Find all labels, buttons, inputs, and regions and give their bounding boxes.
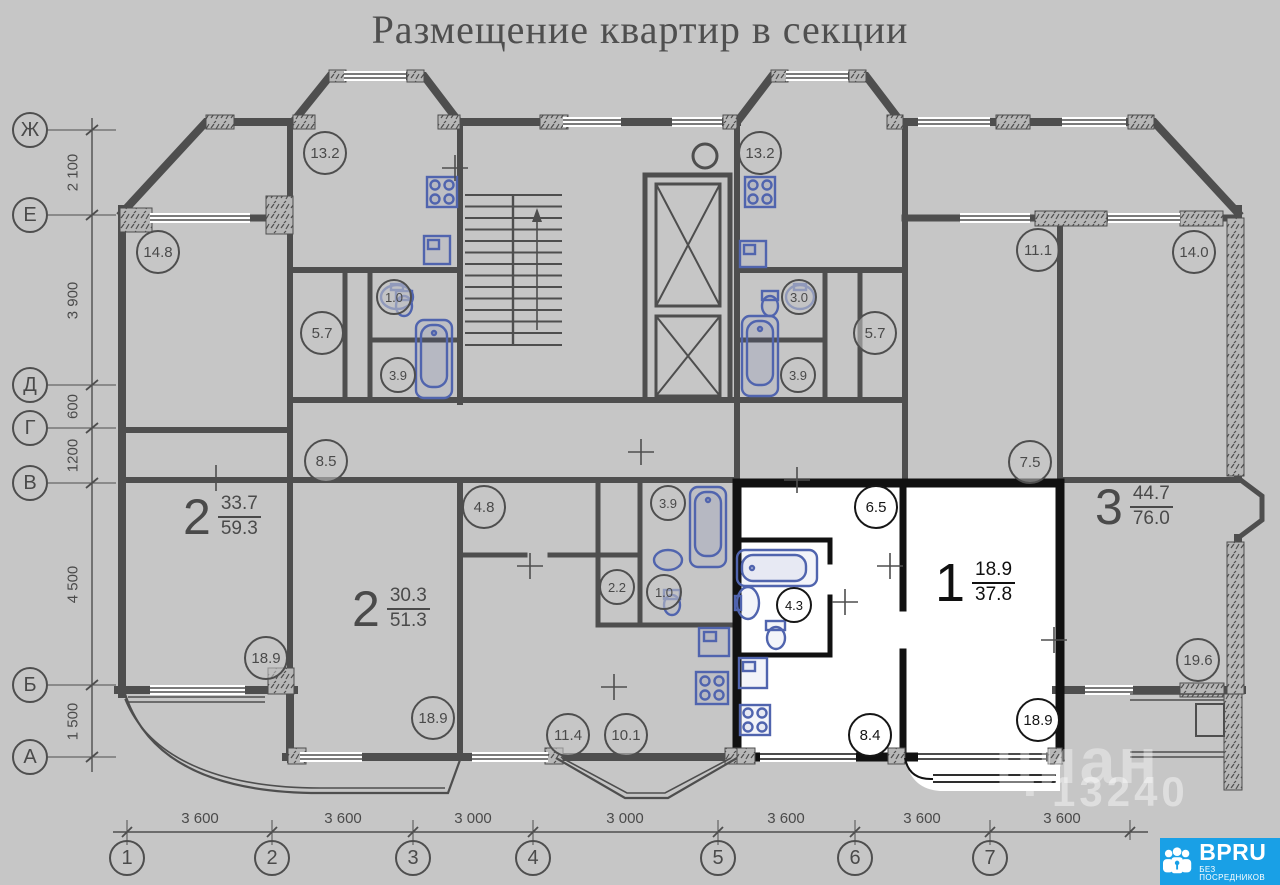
page-title: Размещение квартир в секции — [0, 6, 1280, 53]
axis-row-marker: Ж — [12, 112, 48, 148]
people-lock-icon — [1160, 846, 1194, 878]
room-area-label: 8.4 — [848, 713, 892, 757]
room-area-label: 13.2 — [738, 131, 782, 175]
room-area-label: 13.2 — [303, 131, 347, 175]
room-area-label: 18.9 — [244, 636, 288, 680]
stairs — [465, 195, 562, 345]
axis-row-marker: Г — [12, 410, 48, 446]
bpru-badge: BPRU БЕЗ ПОСРЕДНИКОВ — [1160, 838, 1280, 885]
walls-gray — [118, 76, 1262, 760]
axis-row-marker: Е — [12, 197, 48, 233]
axis-row-marker: А — [12, 739, 48, 775]
badge-tagline: БЕЗ ПОСРЕДНИКОВ — [1199, 866, 1280, 882]
stove-icon — [745, 177, 775, 207]
apartment-type: 1 — [935, 556, 965, 610]
dimension-text: 4 500 — [65, 540, 82, 630]
room-area-label: 4.8 — [462, 485, 506, 529]
room-area-label: 2.2 — [599, 569, 635, 605]
room-area-label: 11.1 — [1016, 228, 1060, 272]
apartment-areas: 30.3 51.3 — [387, 585, 430, 633]
living-area: 18.9 — [972, 559, 1015, 584]
stove-icon — [740, 705, 770, 735]
floorplan-screenshot: Размещение квартир в секции 13.2 13.2 14… — [0, 0, 1280, 885]
apartment-label-3room: 3 44.7 76.0 — [1095, 482, 1173, 532]
living-area: 33.7 — [218, 493, 261, 518]
apartment-areas: 44.7 76.0 — [1130, 483, 1173, 531]
dimension-text: 3 600 — [303, 810, 383, 827]
room-area-label: 3.9 — [780, 357, 816, 393]
axis-row-marker: Б — [12, 667, 48, 703]
fridge-icon — [739, 658, 767, 688]
watermark-code: 13240 — [1052, 768, 1189, 816]
fridge-icon — [424, 236, 450, 264]
toilet-icon — [766, 621, 785, 649]
room-area-label: 18.9 — [411, 696, 455, 740]
total-area: 37.8 — [975, 584, 1012, 605]
room-area-label: 1.0 — [376, 279, 412, 315]
bathtub-icon — [690, 487, 726, 567]
elevator-shafts — [645, 144, 730, 400]
apartment-type: 3 — [1095, 482, 1123, 532]
room-area-label: 8.5 — [304, 439, 348, 483]
room-area-label: 5.7 — [853, 311, 897, 355]
garbage-chute — [693, 144, 717, 168]
dimension-text: 3 600 — [746, 810, 826, 827]
dimension-text: 3 000 — [433, 810, 513, 827]
axis-row-marker: Д — [12, 367, 48, 403]
dimension-text: 1 500 — [65, 677, 82, 767]
axis-col-marker: 1 — [109, 840, 145, 876]
dimension-text: 3 000 — [585, 810, 665, 827]
badge-brand: BPRU — [1199, 841, 1280, 864]
apartment-label-1room: 1 18.9 37.8 — [935, 556, 1015, 610]
room-area-label: 1.0 — [646, 574, 682, 610]
axis-row-marker: В — [12, 465, 48, 501]
total-area: 76.0 — [1133, 508, 1170, 529]
axis-col-marker: 7 — [972, 840, 1008, 876]
room-area-label: 4.3 — [776, 587, 812, 623]
bathtub-icon — [742, 316, 778, 396]
fridge-icon — [699, 628, 729, 656]
bathtub-icon — [737, 550, 817, 586]
axis-col-marker: 2 — [254, 840, 290, 876]
room-area-label: 3.9 — [650, 485, 686, 521]
room-area-label: 7.5 — [1008, 440, 1052, 484]
room-area-label: 19.6 — [1176, 638, 1220, 682]
apartment-label-2room-a: 2 33.7 59.3 — [183, 492, 261, 542]
room-area-label: 6.5 — [854, 485, 898, 529]
living-area: 30.3 — [387, 585, 430, 610]
axis-col-marker: 4 — [515, 840, 551, 876]
dimension-text: 3 900 — [65, 256, 82, 346]
stove-icon — [696, 672, 728, 704]
apartment-type: 2 — [352, 584, 380, 634]
stove-icon — [427, 177, 457, 207]
apartment-areas: 18.9 37.8 — [972, 559, 1015, 607]
axis-col-marker: 5 — [700, 840, 736, 876]
toilet-icon — [762, 291, 778, 316]
dimension-text: 1200 — [65, 411, 82, 501]
room-area-label: 11.4 — [546, 713, 590, 757]
apartment-label-2room-b: 2 30.3 51.3 — [352, 584, 430, 634]
apartment-type: 2 — [183, 492, 211, 542]
bathtub-icon — [416, 320, 452, 398]
room-area-label: 10.1 — [604, 713, 648, 757]
dimension-text: 2 100 — [65, 128, 82, 218]
total-area: 51.3 — [390, 610, 427, 631]
total-area: 59.3 — [221, 518, 258, 539]
axis-col-marker: 3 — [395, 840, 431, 876]
dimension-text: 3 600 — [160, 810, 240, 827]
fridge-icon — [740, 241, 766, 267]
dimension-text: 3 600 — [882, 810, 962, 827]
apartment-areas: 33.7 59.3 — [218, 493, 261, 541]
room-area-label: 14.0 — [1172, 230, 1216, 274]
room-area-label: 14.8 — [136, 230, 180, 274]
room-area-label: 5.7 — [300, 311, 344, 355]
room-area-label: 3.9 — [380, 357, 416, 393]
sink-icon — [654, 550, 682, 570]
axis-col-marker: 6 — [837, 840, 873, 876]
room-area-label: 3.0 — [781, 279, 817, 315]
living-area: 44.7 — [1130, 483, 1173, 508]
